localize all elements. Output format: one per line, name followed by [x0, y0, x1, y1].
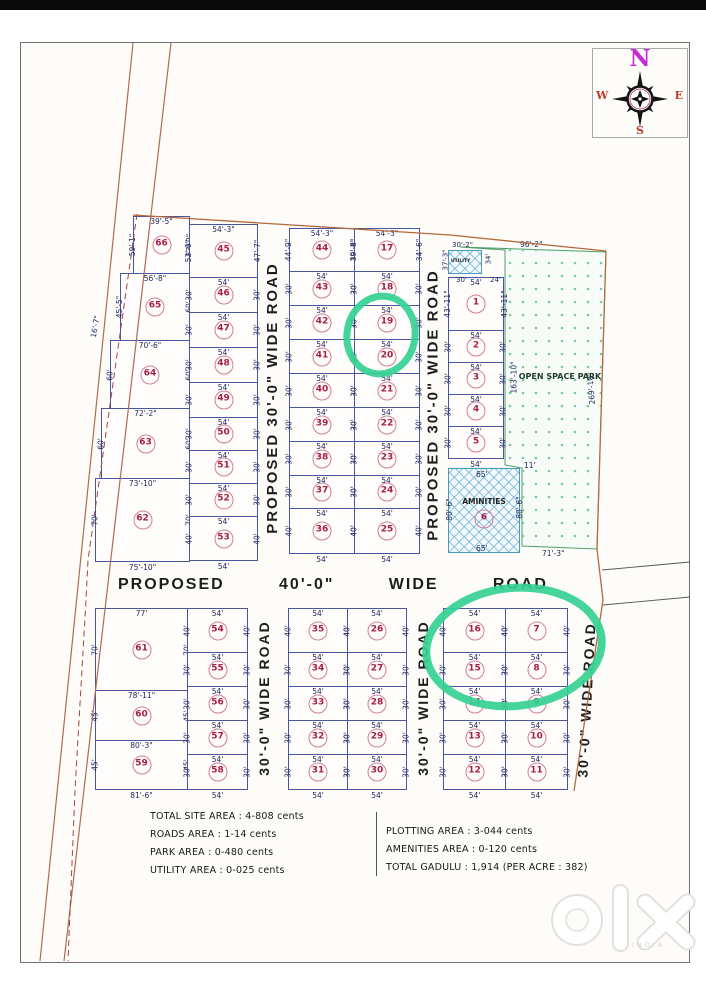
- plot-41-left-dim: 30': [286, 351, 294, 363]
- plot-layout-image: 39'-5"59'-1"52'-9"6656'-8"45'-5"60'6570'…: [0, 0, 706, 999]
- road-label-middle: PROPOSED40'-0"WIDEROAD: [118, 576, 548, 594]
- plot-42: 54'30'30'42: [289, 305, 355, 340]
- plot-number-15: 15: [465, 660, 484, 679]
- plot-60-top-dim: 78'-11": [128, 692, 155, 700]
- plot-4-right-dim: 30': [500, 405, 508, 417]
- plot-60: 78'-11"45'45'60: [95, 690, 188, 741]
- plot-27-left-dim: 30': [344, 664, 352, 676]
- plot-22: 54'30'30'22: [354, 407, 420, 442]
- plot-25-bottom-dim: 54': [381, 556, 393, 564]
- summary-right-line-2: TOTAL GADULU : 1,914 (PER ACRE : 382): [386, 862, 588, 873]
- plot-number-36: 36: [313, 522, 332, 541]
- plot-20: 54'30'30'20: [354, 339, 420, 374]
- amenities-left-dim: 80'-6": [445, 498, 454, 521]
- plot-58-bottom-dim: 54': [212, 792, 224, 800]
- plot-number-21: 21: [378, 381, 397, 400]
- plot-16: 54'40'40'16: [443, 608, 506, 653]
- plot-number-57: 57: [208, 728, 227, 747]
- plot-53-left-dim: 40': [186, 533, 194, 545]
- plot-56-right-dim: 30': [244, 698, 252, 710]
- plot-66-left-dim: 59'-1": [129, 234, 137, 257]
- plot-51-left-dim: 30': [186, 461, 194, 473]
- plot-number-23: 23: [378, 449, 397, 468]
- plot-26-right-dim: 40': [403, 625, 411, 637]
- plot-number-56: 56: [208, 694, 227, 713]
- plot-number-25: 25: [378, 522, 397, 541]
- plot-53-top-dim: 54': [218, 518, 230, 526]
- plot-number-18: 18: [378, 279, 397, 298]
- plot-64-left-dim: 60': [107, 369, 115, 381]
- plot-61-top-dim: 77': [136, 610, 148, 618]
- plot-25: 54'54'40'40'25: [354, 508, 420, 554]
- plot-36-top-dim: 54': [316, 510, 328, 518]
- plot-8-right-dim: 30': [564, 664, 572, 676]
- plot-40-left-dim: 30': [286, 385, 294, 397]
- plot-18-left-dim: 30': [351, 283, 359, 295]
- plot-25-right-dim: 40': [416, 525, 424, 537]
- plot-36-bottom-dim: 54': [316, 556, 328, 564]
- plot-51-right-dim: 30': [254, 461, 262, 473]
- plot-66: 39'-5"59'-1"52'-9"66: [133, 216, 190, 274]
- plot-45-top-dim: 54'-3": [212, 226, 235, 234]
- plot-12: 54'54'30'30'12: [443, 754, 506, 790]
- plot-66-top-dim: 39'-5": [150, 218, 173, 226]
- plot-53-bottom-dim: 54': [218, 563, 230, 571]
- plot-63: 72'-2"60'60'63: [101, 408, 190, 479]
- plot-23: 54'30'30'23: [354, 441, 420, 476]
- plot-61-left-dim: 70': [92, 644, 100, 656]
- plot-number-31: 31: [309, 763, 328, 782]
- plot-31: 54'54'30'30'31: [288, 754, 348, 790]
- plot-16-left-dim: 40': [440, 625, 448, 637]
- plot-number-45: 45: [214, 242, 233, 261]
- plot-number-20: 20: [378, 347, 397, 366]
- plot-21-right-dim: 30': [416, 385, 424, 397]
- plot-7-left-dim: 40': [502, 625, 510, 637]
- plot-8-left-dim: 30': [502, 664, 510, 676]
- summary-left-line-3: UTILITY AREA : 0-025 cents: [150, 865, 304, 876]
- plot-11-left-dim: 30': [502, 766, 510, 778]
- plot-36-left-dim: 40': [286, 525, 294, 537]
- plot-13: 54'30'30'13: [443, 720, 506, 755]
- plot-number-51: 51: [214, 458, 233, 477]
- plot-number-49: 49: [214, 391, 233, 410]
- plot-number-50: 50: [214, 425, 233, 444]
- compass-star-icon: [608, 66, 672, 130]
- plot-11-bottom-dim: 54': [531, 792, 543, 800]
- plot-62-top-dim: 73'-10": [129, 480, 156, 488]
- plot-26-left-dim: 40': [344, 625, 352, 637]
- plot-number-2: 2: [467, 337, 486, 356]
- plot-number-52: 52: [214, 491, 233, 510]
- plot-37-left-dim: 30': [286, 486, 294, 498]
- utility-top-dim: 30'-2": [452, 241, 473, 249]
- plot-55-left-dim: 30': [184, 664, 192, 676]
- plot-34-left-dim: 30': [285, 664, 293, 676]
- plot-53-right-dim: 40': [254, 533, 262, 545]
- plot-1: 54'43'-11"43'-11"1: [448, 277, 504, 331]
- plot-37: 54'30'30'37: [289, 475, 355, 509]
- plot-34: 54'30'30'34: [288, 652, 348, 687]
- plot-number-8: 8: [527, 660, 546, 679]
- plot-number-61: 61: [132, 640, 151, 659]
- plot-number-32: 32: [309, 728, 328, 747]
- plot-23-left-dim: 30': [351, 453, 359, 465]
- park-bottom-dim: 71'-3": [542, 549, 565, 558]
- plot-35-left-dim: 40': [285, 625, 293, 637]
- plot-number-37: 37: [313, 483, 332, 502]
- plot-19: 54'30'30'19: [354, 305, 420, 340]
- summary-right-block: PLOTTING AREA : 3-044 centsAMENITIES ARE…: [386, 826, 588, 880]
- plot-2: 54'30'30'2: [448, 330, 504, 363]
- plot-65: 56'-8"45'-5"60'65: [120, 273, 190, 341]
- plot-47: 54'30'30'47: [189, 312, 258, 348]
- plot-63-left-dim: 60': [98, 438, 106, 450]
- amenities-bottom-dim: 65': [476, 544, 488, 553]
- plot-23-right-dim: 30': [416, 453, 424, 465]
- plot-8: 54'30'30'8: [505, 652, 568, 687]
- plot-58-right-dim: 30': [244, 766, 252, 778]
- plot-32: 54'30'30'32: [288, 720, 348, 755]
- plot-59-top-dim: 80'-3": [130, 742, 153, 750]
- plot-54-top-dim: 54': [212, 610, 224, 618]
- plot-18: 54'30'30'18: [354, 271, 420, 306]
- plot-36: 54'54'40'40'36: [289, 508, 355, 554]
- plot-5-left-dim: 30': [445, 437, 453, 449]
- plot-30-right-dim: 30': [403, 766, 411, 778]
- plot-15: 54'30'30'15: [443, 652, 506, 687]
- summary-left-line-2: PARK AREA : 0-480 cents: [150, 847, 304, 858]
- plot-50: 54'30'30'50: [189, 417, 258, 451]
- amenities-right-dim: 80'-6": [515, 496, 524, 519]
- plot-20-right-dim: 30': [416, 351, 424, 363]
- plot-number-10: 10: [527, 728, 546, 747]
- plot-number-19: 19: [378, 313, 397, 332]
- plot-5-right-dim: 30': [500, 437, 508, 449]
- plot-32-left-dim: 30': [285, 732, 293, 744]
- plot-number-24: 24: [378, 483, 397, 502]
- plot-number-48: 48: [214, 356, 233, 375]
- plot-number-38: 38: [313, 449, 332, 468]
- olx-india-label: INDIA: [632, 941, 665, 949]
- plot-48-right-dim: 30': [254, 359, 262, 371]
- plot-52-right-dim: 30': [254, 494, 262, 506]
- plot-55: 54'30'30'55: [187, 652, 248, 687]
- plot-number-28: 28: [368, 694, 387, 713]
- compass-east-label: E: [675, 89, 683, 102]
- plot-number-66: 66: [152, 236, 171, 255]
- plot-56-left-dim: 30': [184, 698, 192, 710]
- plot-12-bottom-dim: 54': [469, 792, 481, 800]
- road-label-top-left: PROPOSED 30'-0" WIDE ROAD: [264, 248, 282, 548]
- plot-number-17: 17: [378, 241, 397, 260]
- plot-42-left-dim: 30': [286, 317, 294, 329]
- plot-number-39: 39: [313, 415, 332, 434]
- road-word: WIDE: [389, 576, 439, 594]
- plot-59: 80'-3"81'-6"45'45'59: [95, 740, 188, 790]
- plot-59-bottom-dim: 81'-6": [130, 792, 153, 800]
- plot-48: 54'30'30'48: [189, 347, 258, 383]
- plot-30-bottom-dim: 54': [371, 792, 383, 800]
- plot-number-26: 26: [368, 621, 387, 640]
- plot-54: 54'40'40'54: [187, 608, 248, 653]
- plot-12-left-dim: 30': [440, 766, 448, 778]
- plot-59-left-dim: 45': [92, 759, 100, 771]
- plot-10: 54'30'30'10: [505, 720, 568, 755]
- plot-number-47: 47: [214, 321, 233, 340]
- plot-number-60: 60: [132, 706, 151, 725]
- plot-48-left-dim: 30': [186, 359, 194, 371]
- boundary-dim-label: 16'-7": [89, 315, 102, 339]
- plot-28-right-dim: 30': [403, 698, 411, 710]
- plot-3-right-dim: 30': [500, 373, 508, 385]
- summary-left-line-1: ROADS AREA : 1-14 cents: [150, 829, 304, 840]
- plot-44: 54'-3"44'-9"39'-8"44: [289, 228, 355, 272]
- plot-number-11: 11: [527, 763, 546, 782]
- amenities-area: AMINITIES6: [448, 468, 520, 553]
- plot-35-top-dim: 54': [312, 610, 324, 618]
- plot-17: 54'-3"39'-8"34'-6"17: [354, 228, 420, 272]
- plot-26: 54'40'40'26: [347, 608, 407, 653]
- plot-24: 54'30'30'24: [354, 475, 420, 509]
- summary-right-line-0: PLOTTING AREA : 3-044 cents: [386, 826, 588, 837]
- plot-28-left-dim: 30': [344, 698, 352, 710]
- plot-40: 54'30'30'40: [289, 373, 355, 408]
- plot-57-right-dim: 30': [244, 732, 252, 744]
- plot-number-30: 30: [368, 763, 387, 782]
- amenities-corner-dim: 11': [524, 461, 536, 470]
- plot-10-right-dim: 30': [564, 732, 572, 744]
- compass-west-label: W: [596, 89, 608, 102]
- plot-7-top-dim: 54': [531, 610, 543, 618]
- plot-number-35: 35: [309, 621, 328, 640]
- plot-number-22: 22: [378, 415, 397, 434]
- plot-number-63: 63: [136, 434, 155, 453]
- plot-43-left-dim: 30': [286, 283, 294, 295]
- plot-number-12: 12: [465, 763, 484, 782]
- site-plan: 39'-5"59'-1"52'-9"6656'-8"45'-5"60'6570'…: [0, 0, 706, 999]
- summary-right-line-1: AMENITIES AREA : 0-120 cents: [386, 844, 588, 855]
- plot-number-53: 53: [214, 529, 233, 548]
- plot-49-right-dim: 30': [254, 394, 262, 406]
- plot-number-59: 59: [132, 756, 151, 775]
- plot-number-29: 29: [368, 728, 387, 747]
- plot-47-left-dim: 30': [186, 324, 194, 336]
- plot-15-left-dim: 30': [440, 664, 448, 676]
- plot-29-left-dim: 30': [344, 732, 352, 744]
- plot-27: 54'30'30'27: [347, 652, 407, 687]
- plot-49: 54'30'30'49: [189, 382, 258, 418]
- plot-number-6: 6: [475, 509, 494, 528]
- plot-54-right-dim: 40': [244, 625, 252, 637]
- plot-41: 54'30'30'41: [289, 339, 355, 374]
- park-top-dim: 96'-2": [520, 240, 543, 249]
- plot-number-27: 27: [368, 660, 387, 679]
- plot-number-58: 58: [208, 763, 227, 782]
- plot-number-55: 55: [208, 660, 227, 679]
- plot-49-left-dim: 30': [186, 394, 194, 406]
- plot-9: 54'30'30'9: [505, 686, 568, 721]
- plot-number-46: 46: [214, 286, 233, 305]
- plot-61: 77'70'70'61: [95, 608, 188, 691]
- plot-14: 54'30'30'14: [443, 686, 506, 721]
- plot-25-top-dim: 54': [381, 510, 393, 518]
- plot-4: 54'30'30'4: [448, 394, 504, 427]
- plot-57: 54'30'30'57: [187, 720, 248, 755]
- plot-58: 54'54'30'30'58: [187, 754, 248, 790]
- plot-51: 54'30'30'51: [189, 450, 258, 484]
- plot-2-right-dim: 30': [500, 341, 508, 353]
- plot-16-top-dim: 54': [469, 610, 481, 618]
- road-label-bottom-left: 30'-0" WIDE ROAD: [256, 607, 274, 789]
- plot-27-right-dim: 30': [403, 664, 411, 676]
- plot-29: 54'30'30'29: [347, 720, 407, 755]
- plot-39: 54'30'30'39: [289, 407, 355, 442]
- plot-64: 70'-6"60'60'64: [110, 340, 190, 409]
- road-word: PROPOSED: [118, 576, 225, 594]
- plot-13-left-dim: 30': [440, 732, 448, 744]
- plot-65-top-dim: 56'-8": [144, 275, 167, 283]
- utility-corner-dim: 24': [490, 276, 501, 284]
- plot-number-3: 3: [467, 369, 486, 388]
- plot-1-left-dim: 43'-11": [444, 290, 452, 317]
- plot-58-left-dim: 30': [184, 766, 192, 778]
- plot-number-41: 41: [313, 347, 332, 366]
- plot-21: 54'30'30'21: [354, 373, 420, 408]
- plot-28: 54'30'30'28: [347, 686, 407, 721]
- plot-52: 54'30'30'52: [189, 483, 258, 517]
- plot-26-top-dim: 54': [371, 610, 383, 618]
- plot-17-top-dim: 54'-3": [376, 230, 399, 238]
- plot-3: 54'30'30'3: [448, 362, 504, 395]
- plot-19-left-dim: 30': [351, 317, 359, 329]
- plot-5: 54'54'30'30'5: [448, 426, 504, 459]
- road-word: ROAD: [493, 576, 548, 594]
- plot-number-42: 42: [313, 313, 332, 332]
- summary-left-line-0: TOTAL SITE AREA : 4-808 cents: [150, 811, 304, 822]
- plot-65-left-dim: 45'-5": [116, 296, 124, 319]
- road-label-bottom-right: 30'-0" WIDE ROAD: [573, 607, 601, 793]
- plot-45-left-dim: 52'-9": [185, 240, 193, 263]
- plot-number-64: 64: [141, 365, 160, 384]
- plot-number-33: 33: [309, 694, 328, 713]
- plot-number-4: 4: [467, 401, 486, 420]
- summary-left-block: TOTAL SITE AREA : 4-808 centsROADS AREA …: [150, 811, 304, 883]
- utility-left-dim: 37'-3": [442, 249, 450, 270]
- plot-30: 54'54'30'30'30: [347, 754, 407, 790]
- plot-46: 54'30'30'46: [189, 277, 258, 313]
- plot-1-right-dim: 43'-11": [501, 290, 509, 317]
- plot-3-left-dim: 30': [445, 373, 453, 385]
- plot-number-5: 5: [467, 433, 486, 452]
- compass-rose: N S W E: [592, 48, 688, 138]
- plot-60-left-dim: 45': [92, 710, 100, 722]
- plot-7-right-dim: 40': [564, 625, 572, 637]
- plot-7: 54'40'40'7: [505, 608, 568, 653]
- plot-45: 54'-3"52'-9"47'-7"45: [189, 224, 258, 278]
- plot-5-bottom-dim: 54': [470, 461, 482, 469]
- plot-38-left-dim: 30': [286, 453, 294, 465]
- plot-62: 73'-10"75'-10"70'70'62: [95, 478, 190, 562]
- plot-10-left-dim: 30': [502, 732, 510, 744]
- amenities-top-dim: 65': [476, 470, 488, 479]
- plot-number-44: 44: [313, 241, 332, 260]
- plot-35: 54'40'40'35: [288, 608, 348, 653]
- plot-54-left-dim: 40': [184, 625, 192, 637]
- plot-62-bottom-dim: 75'-10": [129, 564, 156, 572]
- plot-38: 54'30'30'38: [289, 441, 355, 476]
- open-space-park-label: OPEN SPACE PARK: [518, 372, 602, 382]
- plot-64-top-dim: 70'-6": [139, 342, 162, 350]
- plot-number-14: 14: [465, 694, 484, 713]
- plot-33: 54'30'30'33: [288, 686, 348, 721]
- utility-bottom-dim: 30': [456, 276, 467, 284]
- plot-44-left-dim: 44'-9": [285, 239, 293, 262]
- plot-number-9: 9: [527, 694, 546, 713]
- plot-33-left-dim: 30': [285, 698, 293, 710]
- plot-56: 54'30'30'56: [187, 686, 248, 721]
- plot-number-43: 43: [313, 279, 332, 298]
- plot-50-right-dim: 30': [254, 428, 262, 440]
- plot-50-left-dim: 30': [186, 428, 194, 440]
- plot-29-right-dim: 30': [403, 732, 411, 744]
- plot-30-left-dim: 30': [344, 766, 352, 778]
- plot-17-right-dim: 34'-6": [416, 239, 424, 262]
- plot-22-left-dim: 30': [351, 419, 359, 431]
- plot-14-left-dim: 30': [440, 698, 448, 710]
- plot-20-left-dim: 30': [351, 351, 359, 363]
- plot-18-right-dim: 30': [416, 283, 424, 295]
- plot-11: 54'54'30'30'11: [505, 754, 568, 790]
- plot-55-right-dim: 30': [244, 664, 252, 676]
- utility-area: UTILITY: [448, 250, 482, 274]
- amenities-label: AMINITIES: [462, 497, 506, 506]
- road-word: 40'-0": [279, 576, 334, 594]
- plot-2-left-dim: 30': [445, 341, 453, 353]
- plot-number-16: 16: [465, 621, 484, 640]
- plot-11-right-dim: 30': [564, 766, 572, 778]
- plot-43: 54'30'30'43: [289, 271, 355, 306]
- plot-number-62: 62: [133, 511, 152, 530]
- plot-45-right-dim: 47'-7": [254, 240, 262, 263]
- plot-number-13: 13: [465, 728, 484, 747]
- plot-52-left-dim: 30': [186, 494, 194, 506]
- plot-24-left-dim: 30': [351, 486, 359, 498]
- summary-divider: [376, 812, 377, 876]
- plot-31-bottom-dim: 54': [312, 792, 324, 800]
- plot-number-34: 34: [309, 660, 328, 679]
- plot-17-left-dim: 39'-8": [350, 239, 358, 262]
- plot-number-54: 54: [208, 621, 227, 640]
- plot-22-right-dim: 30': [416, 419, 424, 431]
- plot-46-left-dim: 30': [186, 289, 194, 301]
- plot-62-left-dim: 70': [92, 514, 100, 526]
- plot-31-left-dim: 30': [285, 766, 293, 778]
- plot-63-top-dim: 72'-2": [134, 410, 157, 418]
- plot-21-left-dim: 30': [351, 385, 359, 397]
- plot-9-right-dim: 30': [564, 698, 572, 710]
- plot-39-left-dim: 30': [286, 419, 294, 431]
- plot-number-1: 1: [467, 295, 486, 314]
- plot-46-right-dim: 30': [254, 289, 262, 301]
- plot-24-right-dim: 30': [416, 486, 424, 498]
- plot-4-left-dim: 30': [445, 405, 453, 417]
- plot-47-right-dim: 30': [254, 324, 262, 336]
- plot-53: 54'54'40'40'53: [189, 516, 258, 561]
- plot-25-left-dim: 40': [351, 525, 359, 537]
- plot-9-left-dim: 30': [502, 698, 510, 710]
- plot-19-right-dim: 30': [416, 317, 424, 329]
